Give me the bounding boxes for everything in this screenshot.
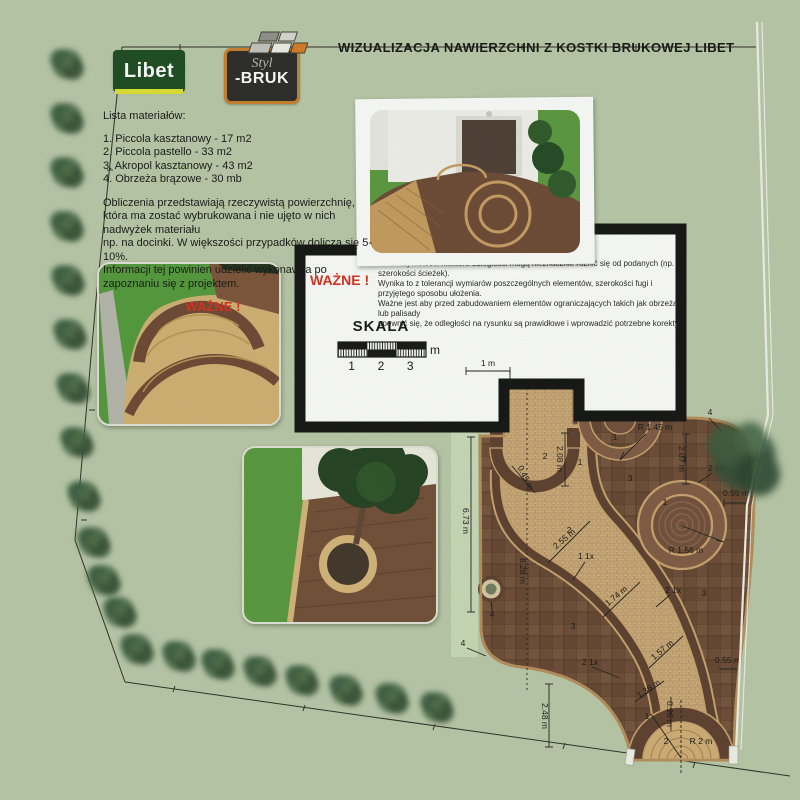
materials-list: 1. Piccola kasztanowy - 17 m22. Piccola … [103,133,373,187]
gate-post-right [729,746,738,764]
materials-note-line: np. na docinki. W większości przypadków … [103,237,373,264]
stylbruk-logo-line2: -BRUK [227,70,297,88]
materials-note: Obliczenia przedstawiają rzeczywistą pow… [103,197,373,292]
page-title: WIZUALIZACJA NAWIERZCHNI Z KOSTKI BRUKOW… [338,40,768,55]
materials-heading: Lista materiałów: [103,110,373,124]
libet-logo-underline [115,89,183,94]
paving-stones-icon [240,30,312,62]
materials-note-line: Obliczenia przedstawiają rzeczywistą pow… [103,197,373,211]
materials-item: 3. Akropol kasztanowy - 43 m2 [103,160,373,174]
libet-logo: Libet [113,50,185,92]
materials-item: 2. Piccola pastello - 33 m2 [103,146,373,160]
materials-item: 1. Piccola kasztanowy - 17 m2 [103,133,373,147]
libet-logo-text: Libet [124,60,174,83]
materials-note-line: która ma zostać wybrukowana i nie ujęto … [103,210,373,237]
materials-item: 4. Obrzeża brązowe - 30 mb [103,173,373,187]
materials-warning-label: WAŻNE ! [103,300,323,314]
materials-block: Lista materiałów: 1. Piccola kasztanowy … [103,110,373,314]
fence-line [736,22,768,750]
page: { "header": { "title": "WIZUALIZACJA NAW… [0,0,800,800]
materials-note-line: Informacji tej powinien udzielić wykonaw… [103,264,373,291]
gate-post-left [625,749,635,766]
